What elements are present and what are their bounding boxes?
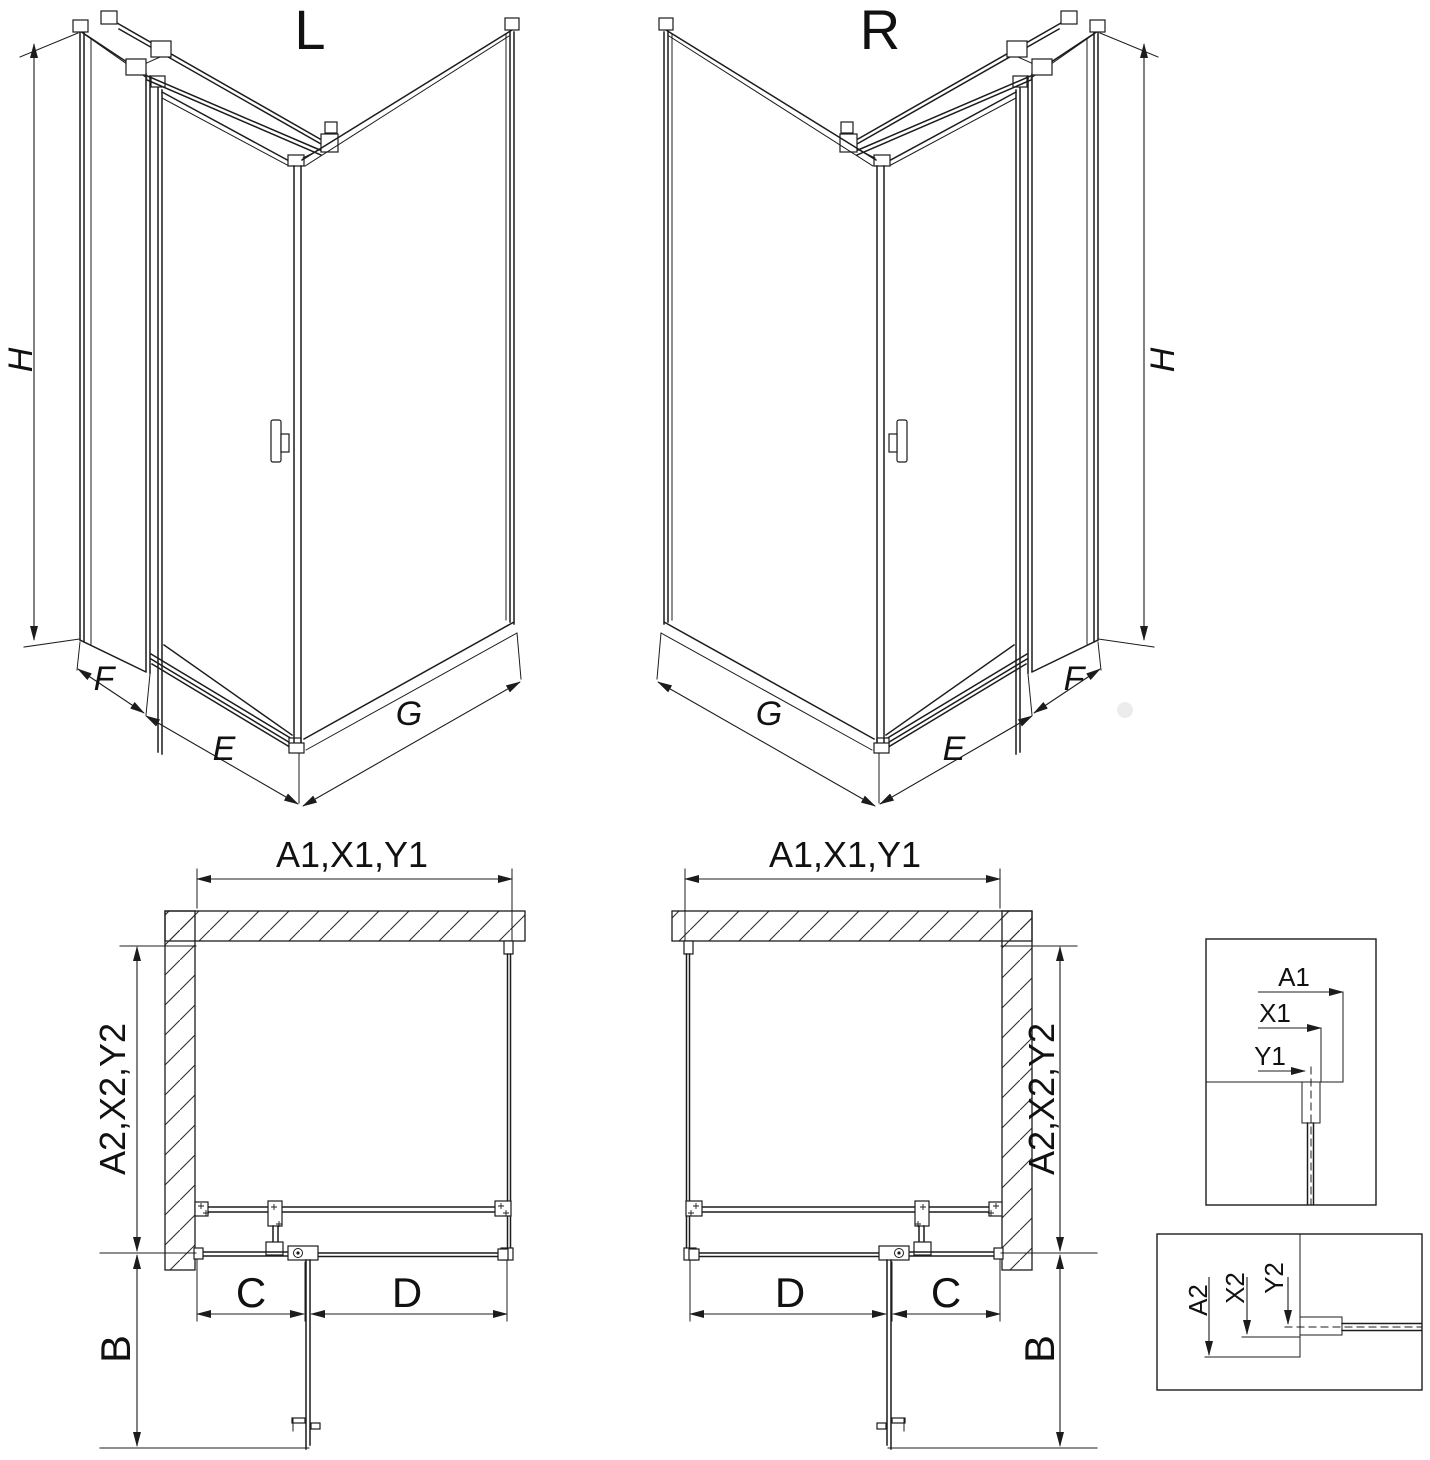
detail-bottom-dim-x2: X2	[1220, 1272, 1250, 1304]
iso-left-dim-e: E	[213, 730, 236, 768]
plan-right-dim-top: A1,X1,Y1	[769, 834, 921, 875]
iso-left-dim-g: G	[396, 695, 422, 733]
door-handle-plan	[292, 1418, 305, 1423]
plan-left-dim-d: D	[392, 1269, 422, 1316]
plan-left-dim-side: A2,X2,Y2	[92, 1023, 133, 1175]
iso-right-dim-g: G	[756, 695, 782, 733]
plan-right-dim-c: C	[931, 1269, 961, 1316]
plan-right-dim-d: D	[775, 1269, 805, 1316]
plan-left-dim-top: A1,X1,Y1	[276, 834, 428, 875]
plan-left-dim-c: C	[236, 1269, 266, 1316]
wall-top	[165, 911, 525, 941]
detail-bottom-dim-y2: Y2	[1259, 1262, 1289, 1294]
detail-top-dim-a1: A1	[1278, 962, 1310, 992]
plan-left-dim-b: B	[92, 1335, 139, 1363]
plan-right-dim-side: A2,X2,Y2	[1021, 1023, 1062, 1175]
iso-left-title: L	[294, 0, 325, 61]
iso-left-dim-h: H	[2, 347, 40, 372]
iso-right-title: R	[860, 0, 900, 61]
iso-left-dim-f: F	[94, 660, 117, 698]
detail-bottom-dim-a2: A2	[1183, 1284, 1213, 1316]
iso-right-dim-f: F	[1064, 660, 1087, 698]
shower-enclosure-technical-drawing: L H F E G R H F E G A1,X1,Y1 A2,X2,Y2 B …	[0, 0, 1430, 1460]
iso-right-dim-e: E	[943, 730, 966, 768]
door-handle-knob	[281, 434, 289, 452]
iso-right-dim-h: H	[1144, 347, 1182, 372]
artifact-dot	[1117, 702, 1133, 718]
door-handle	[271, 420, 281, 462]
detail-top-dim-x1: X1	[1259, 998, 1291, 1028]
wall-top	[672, 911, 1032, 941]
plan-right-dim-b: B	[1016, 1335, 1063, 1363]
detail-top-dim-y1: Y1	[1254, 1041, 1286, 1071]
wall-side	[165, 911, 195, 1270]
